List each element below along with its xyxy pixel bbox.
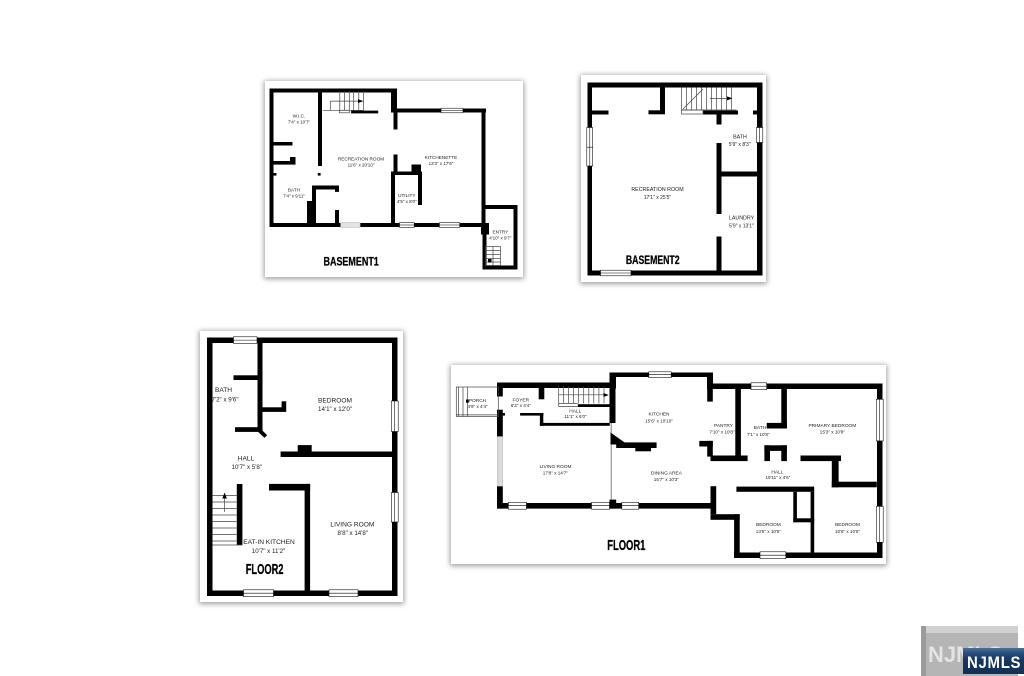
svg-text:14'1" x 12'0": 14'1" x 12'0" (318, 406, 352, 413)
svg-text:5'9" x 8'3": 5'9" x 8'3" (729, 142, 751, 148)
svg-text:RECREATION ROOM: RECREATION ROOM (338, 157, 384, 162)
svg-text:7'4" x 10'7": 7'4" x 10'7" (288, 120, 311, 125)
svg-text:13'3" x 17'6": 13'3" x 17'6" (429, 161, 454, 166)
svg-text:ENTRY: ENTRY (492, 230, 509, 235)
svg-text:BATH: BATH (215, 387, 232, 394)
svg-text:5'9" x 13'1": 5'9" x 13'1" (729, 223, 754, 229)
svg-text:BATH: BATH (733, 134, 747, 140)
svg-text:7'4" x 9'11": 7'4" x 9'11" (283, 193, 305, 198)
svg-text:11'1" x 6'0": 11'1" x 6'0" (564, 414, 587, 419)
svg-text:FLOOR1: FLOOR1 (607, 538, 645, 554)
svg-text:17'8" x 14'7": 17'8" x 14'7" (543, 470, 569, 475)
svg-text:BEDROOM: BEDROOM (835, 522, 860, 528)
svg-text:15'7" x 10'3": 15'7" x 10'3" (654, 477, 680, 482)
svg-text:LAUNDRY: LAUNDRY (729, 215, 755, 221)
svg-text:BATH: BATH (288, 188, 300, 193)
svg-text:7'1" x 10'8": 7'1" x 10'8" (747, 432, 770, 437)
svg-text:FLOOR2: FLOOR2 (246, 561, 284, 578)
svg-text:BEDROOM: BEDROOM (318, 397, 352, 404)
svg-text:15'6" x 10'10": 15'6" x 10'10" (645, 418, 673, 423)
svg-text:BASEMENT1: BASEMENT1 (324, 255, 379, 269)
svg-text:PANTRY: PANTRY (714, 423, 734, 429)
svg-text:RECREATION ROOM: RECREATION ROOM (631, 187, 683, 193)
svg-text:10'7" x 11'2": 10'7" x 11'2" (252, 548, 285, 555)
svg-text:4'10" x 9'7": 4'10" x 9'7" (489, 236, 512, 241)
svg-text:BEDROOM: BEDROOM (756, 522, 781, 528)
svg-text:7'10" x 10'8": 7'10" x 10'8" (709, 430, 735, 435)
svg-text:DINING AREA: DINING AREA (651, 470, 683, 476)
svg-text:4'9" x 4'4": 4'9" x 4'4" (468, 404, 488, 409)
svg-text:10'7" x 5'8": 10'7" x 5'8" (232, 464, 263, 471)
svg-text:10'6" x 10'5": 10'6" x 10'5" (835, 529, 861, 534)
svg-text:UTILITY: UTILITY (398, 193, 416, 198)
svg-text:LIVING ROOM: LIVING ROOM (540, 464, 572, 470)
svg-text:W.I.C.: W.I.C. (293, 114, 306, 119)
svg-text:8'8" x 14'8": 8'8" x 14'8" (338, 530, 369, 537)
svg-text:19'11" x 4'6": 19'11" x 4'6" (765, 475, 790, 480)
svg-text:11'6" x 20'10": 11'6" x 20'10" (348, 163, 375, 168)
svg-text:15'3" x 10'8": 15'3" x 10'8" (820, 430, 846, 435)
svg-text:KITCHEN: KITCHEN (648, 412, 670, 418)
svg-text:BASEMENT2: BASEMENT2 (626, 253, 680, 267)
svg-text:17'1" x 25'5": 17'1" x 25'5" (644, 195, 672, 201)
svg-text:4'5" x 8'0": 4'5" x 8'0" (397, 199, 417, 204)
svg-text:6'3" x 4'4": 6'3" x 4'4" (511, 403, 531, 408)
svg-text:EAT-IN KITCHEN: EAT-IN KITCHEN (243, 539, 295, 546)
svg-text:HALL: HALL (238, 455, 255, 462)
svg-text:7'2" x 9'6": 7'2" x 9'6" (211, 396, 238, 403)
svg-text:BATH: BATH (754, 425, 767, 431)
svg-text:13'5" x 10'5": 13'5" x 10'5" (756, 529, 782, 534)
svg-text:LIVING ROOM: LIVING ROOM (330, 521, 374, 528)
svg-text:KITCHENETTE: KITCHENETTE (425, 155, 458, 160)
svg-text:PRIMARY BEDROOM: PRIMARY BEDROOM (808, 423, 856, 429)
